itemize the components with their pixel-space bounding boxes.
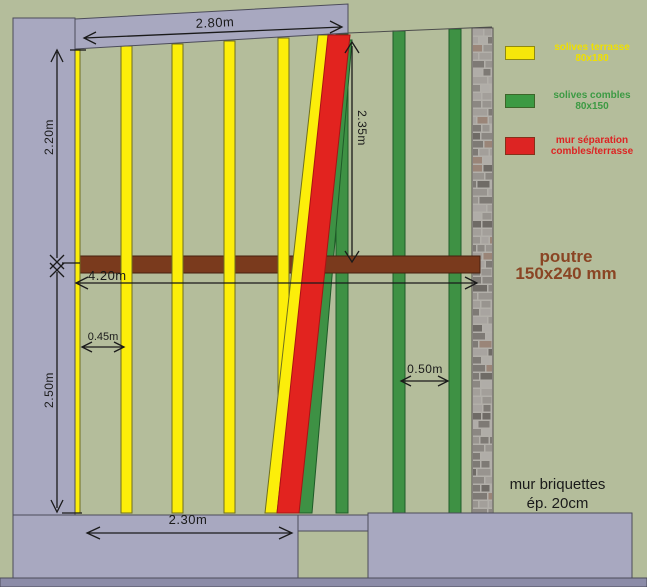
legend-label: solives combles 80x150	[544, 90, 640, 112]
legend-item-mur-separation: mur séparation combles/terrasse	[505, 135, 640, 157]
left-wall	[13, 18, 75, 578]
dimension-separation-height: 2.35m	[355, 103, 369, 153]
bottom-wall-right	[368, 513, 632, 580]
legend-item-solives-terrasse: solives terrasse 80x180	[505, 42, 640, 64]
framing-plan-diagram: 2.80m 2.20m 2.35m 4.20m 0.45m 0.50m 2.50…	[0, 0, 647, 587]
brick-wall-label-size: ép. 20cm	[480, 494, 635, 513]
terrace-joist-swatch	[505, 46, 535, 60]
terrace-joist	[224, 41, 235, 513]
dimension-combles-spacing: 0.50m	[400, 362, 450, 376]
dimension-bottom-width: 2.30m	[153, 512, 223, 527]
beam-label-size: 150x240 mm	[487, 265, 645, 282]
legend-text: combles/terrasse	[544, 146, 640, 157]
legend-text: solives combles	[544, 90, 640, 101]
combles-joist-swatch	[505, 94, 535, 108]
dimension-lower-height: 2.50m	[42, 365, 56, 415]
dimension-terrace-spacing: 0.45m	[78, 331, 128, 343]
bottom-wall-strip	[298, 515, 368, 531]
plan-boundary-line	[348, 27, 492, 33]
terrace-joist	[172, 44, 183, 513]
legend-text: solives terrasse	[544, 42, 640, 53]
dimension-beam-span: 4.20m	[88, 268, 127, 283]
brick-wall-label-title: mur briquettes	[480, 475, 635, 494]
legend-text: 80x180	[544, 53, 640, 64]
dimension-upper-height: 2.20m	[42, 112, 56, 162]
legend-label: mur séparation combles/terrasse	[544, 135, 640, 157]
beam-label: poutre 150x240 mm	[487, 248, 645, 282]
bottom-edge-strip	[0, 578, 647, 587]
legend-text: 80x150	[544, 101, 640, 112]
legend-item-solives-combles: solives combles 80x150	[505, 90, 640, 112]
brick-wall-label: mur briquettes ép. 20cm	[480, 475, 635, 513]
beam-label-title: poutre	[487, 248, 645, 265]
separation-wall-swatch	[505, 137, 535, 155]
legend-label: solives terrasse 80x180	[544, 42, 640, 64]
legend-text: mur séparation	[544, 135, 640, 146]
